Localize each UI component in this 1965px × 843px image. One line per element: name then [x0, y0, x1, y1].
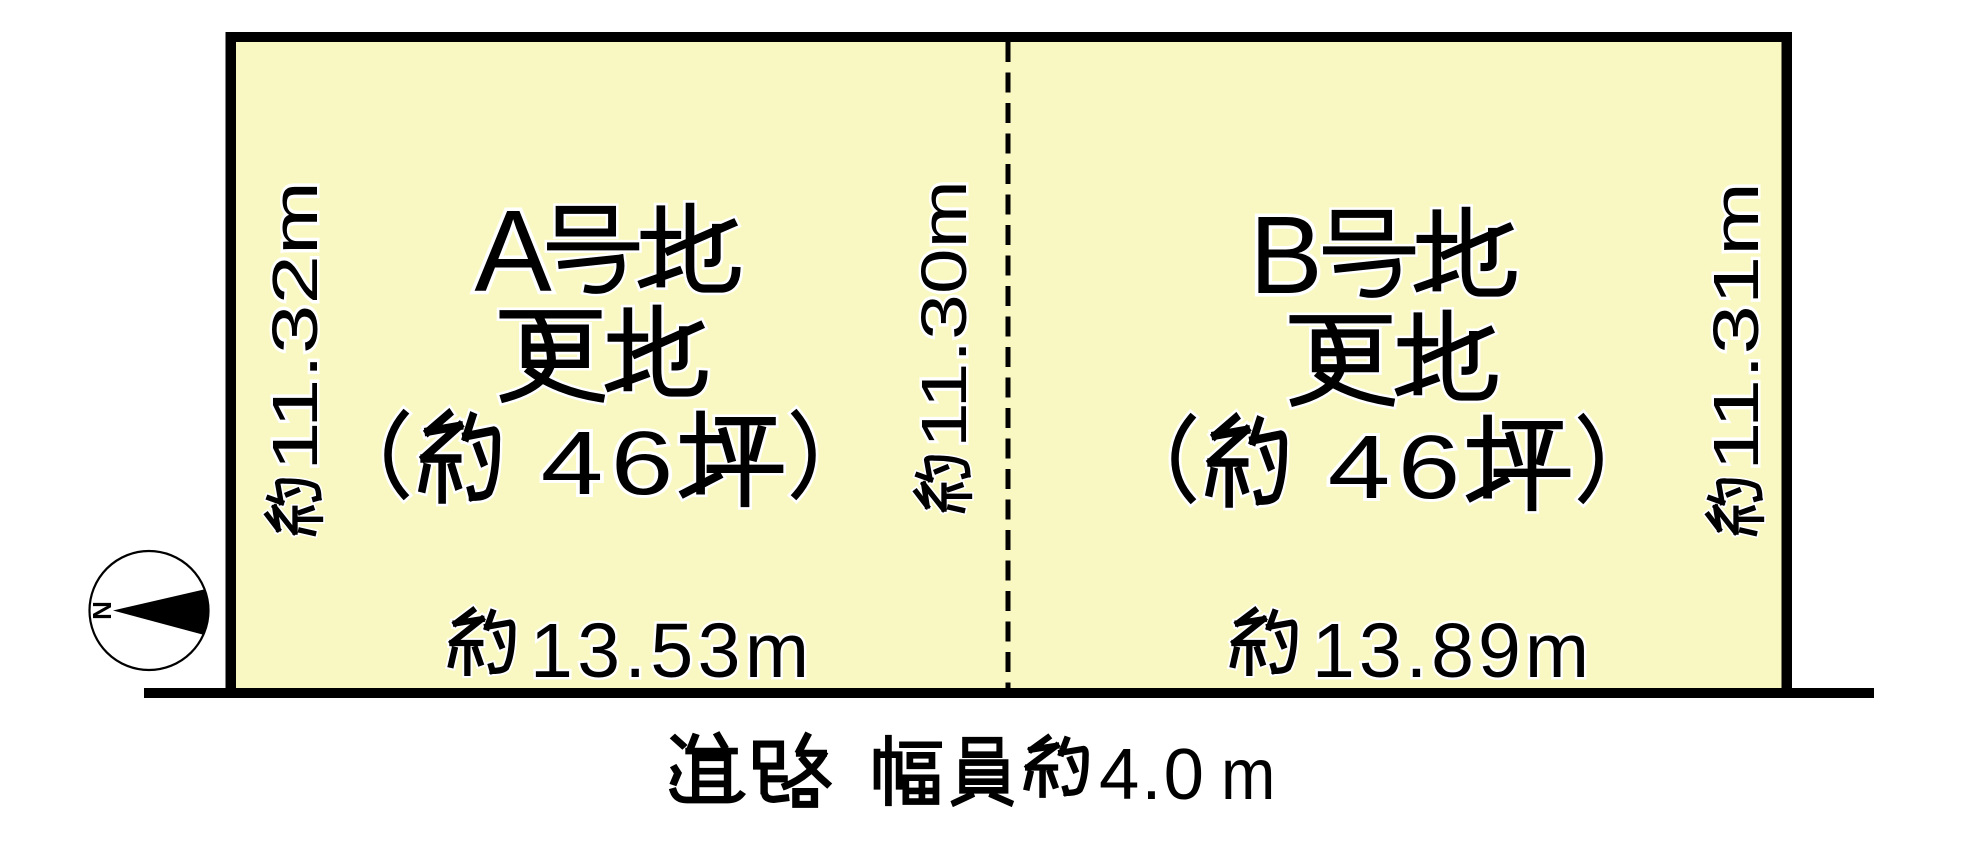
svg-text:13.53m: 13.53m [530, 608, 809, 694]
svg-text:N: N [87, 601, 117, 620]
svg-text:11.31m: 11.31m [1700, 182, 1772, 471]
svg-text:11.32m: 11.32m [259, 181, 331, 471]
svg-text:11.30m: 11.30m [908, 180, 980, 448]
svg-text:A: A [474, 186, 552, 316]
svg-text:4.0: 4.0 [1099, 734, 1204, 815]
svg-text:B: B [1249, 194, 1322, 317]
svg-text:m: m [1221, 734, 1275, 815]
svg-text:4: 4 [541, 413, 604, 514]
svg-text:13.89m: 13.89m [1312, 608, 1589, 694]
svg-text:6: 6 [611, 413, 674, 514]
svg-text:6: 6 [1398, 417, 1461, 518]
svg-text:4: 4 [1328, 417, 1391, 518]
